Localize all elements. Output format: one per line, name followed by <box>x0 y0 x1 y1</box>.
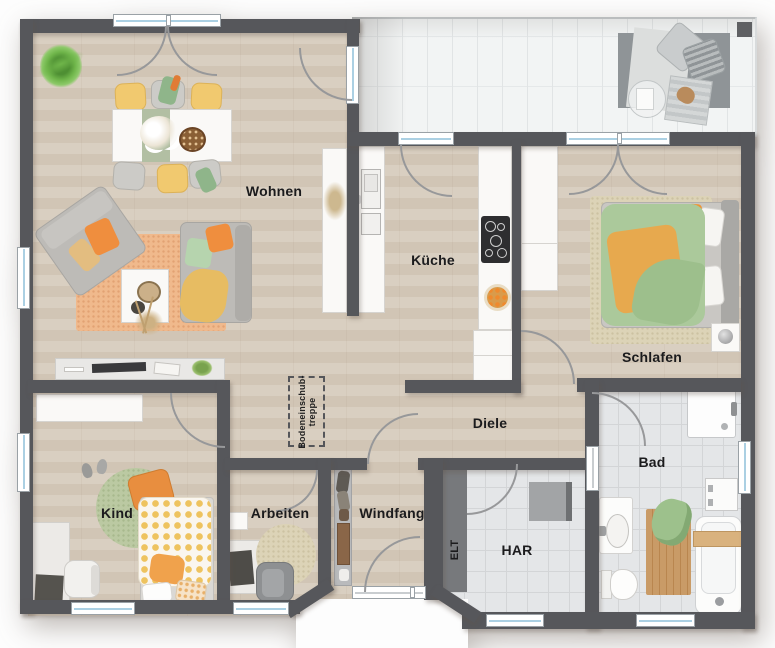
coat-rack <box>334 464 352 586</box>
terrace-door-kueche <box>398 132 454 145</box>
room-label-wohnen: Wohnen <box>246 183 302 199</box>
burner <box>497 248 507 258</box>
dining-chair <box>112 161 146 191</box>
wall-east <box>741 132 755 629</box>
window-kind-south <box>71 602 135 615</box>
bath-caddy <box>693 531 744 547</box>
bathtub <box>695 516 742 615</box>
fruit-bowl <box>484 284 511 311</box>
attic-hatch-label: Bodeneinschub- treppe <box>297 375 317 448</box>
decor-bowl <box>179 127 206 152</box>
sofa <box>180 222 252 323</box>
floor-plan: Bodeneinschub- treppe Woh <box>0 0 775 648</box>
cabinet-handle <box>708 499 713 506</box>
wall-west <box>20 19 33 614</box>
floor-plan-canvas: Bodeneinschub- treppe Woh <box>0 0 775 648</box>
remote <box>64 367 84 372</box>
kitchen-cabinet <box>361 213 381 235</box>
tv <box>92 362 146 373</box>
bathtub-faucet <box>715 597 724 606</box>
burner <box>485 221 496 232</box>
wardrobe-divider <box>522 243 557 244</box>
tv-lowboard <box>55 358 225 380</box>
window-arbeiten-south <box>233 602 289 615</box>
utility-unit <box>529 482 572 521</box>
room-label-arbeiten: Arbeiten <box>251 505 309 521</box>
window-har-south <box>486 614 544 627</box>
window-bad-east <box>738 441 751 494</box>
room-label-har: HAR <box>502 542 533 558</box>
office-chair-seat <box>262 569 284 597</box>
nightstand <box>711 323 740 352</box>
lowboard-plant <box>188 357 216 379</box>
sideboard <box>322 148 347 313</box>
wall-kueche-schlafen <box>512 140 521 393</box>
window-wohnen-west <box>17 247 30 309</box>
double-bed <box>601 200 741 330</box>
cabinet-divider <box>474 355 514 356</box>
nightstand-lamp <box>718 329 733 344</box>
washbasin <box>599 497 633 554</box>
wall-kind-north <box>28 380 227 393</box>
dining-chair <box>114 82 146 112</box>
wall-diele-north <box>405 380 521 393</box>
shower-drain <box>721 423 728 430</box>
toilet-bowl <box>610 569 638 600</box>
toilet <box>601 569 639 600</box>
room-label-diele: Diele <box>473 415 507 431</box>
room-label-bad: Bad <box>638 454 665 470</box>
cooktop <box>481 216 510 263</box>
shower-fixture <box>731 402 737 416</box>
room-label-schlafen: Schlafen <box>622 349 682 365</box>
kitchen-lower-cabinet <box>473 330 515 382</box>
window-kind-west <box>17 433 30 492</box>
window-bad-south <box>636 614 695 627</box>
books <box>153 362 180 377</box>
outside-patch <box>296 599 468 648</box>
terrace-door-schlafen <box>566 132 670 145</box>
door-leaf-bad <box>586 446 599 491</box>
blanket-yellow <box>178 266 231 325</box>
chair-back <box>91 565 99 595</box>
burner <box>490 235 502 247</box>
flower-bouquet <box>140 116 178 150</box>
elt-niche <box>443 468 467 592</box>
burner <box>497 223 505 231</box>
sofa-backrest <box>235 225 251 321</box>
shoe-bench <box>337 523 350 565</box>
wall-arbeiten-north <box>225 458 367 470</box>
wall-windfang-east <box>424 458 443 600</box>
kids-bed <box>138 497 216 609</box>
burner <box>485 249 493 257</box>
room-label-kueche: Küche <box>411 252 455 268</box>
room-label-elt: ELT <box>449 540 461 561</box>
wall-schlafen-south <box>577 378 741 392</box>
kitchen-sink-basin <box>364 174 378 192</box>
room-label-windfang: Windfang <box>359 505 424 521</box>
bedroom-wardrobe <box>521 146 558 291</box>
bag <box>339 509 349 521</box>
kitchen-counter-left <box>358 146 385 313</box>
shower <box>687 388 736 438</box>
shoes <box>339 569 349 581</box>
room-label-kind: Kind <box>101 505 133 521</box>
dining-chair <box>190 82 222 112</box>
dining-chair <box>157 163 189 193</box>
wall-windfang-west <box>318 458 331 592</box>
basin-faucet <box>598 526 606 536</box>
cabinet-handle <box>708 485 713 492</box>
terrace-post <box>737 22 752 37</box>
basin <box>606 514 629 548</box>
kids-desk-chair <box>64 560 100 598</box>
office-monitor <box>228 550 255 586</box>
pillow-orange <box>205 223 235 254</box>
office-chair <box>256 562 294 602</box>
kids-wardrobe <box>36 394 143 422</box>
terrace-tray <box>636 88 654 110</box>
bathroom-cabinet <box>705 478 738 511</box>
